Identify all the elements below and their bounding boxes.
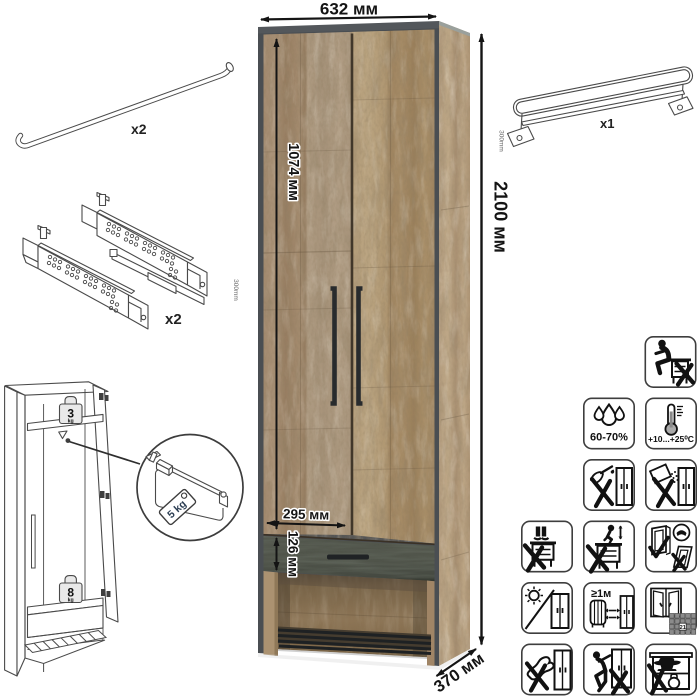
svg-text:kg: kg bbox=[68, 598, 74, 604]
svg-text:300mm: 300mm bbox=[498, 130, 505, 152]
svg-text:+10...+25⁰C: +10...+25⁰C bbox=[648, 434, 694, 444]
svg-text:632 мм: 632 мм bbox=[320, 0, 378, 19]
svg-text:x2: x2 bbox=[131, 121, 147, 137]
svg-text:21: 21 bbox=[680, 625, 686, 631]
svg-text:1074 мм: 1074 мм bbox=[285, 143, 301, 201]
svg-text:60-70%: 60-70% bbox=[590, 432, 628, 444]
svg-text:x2: x2 bbox=[165, 311, 182, 328]
svg-text:x1: x1 bbox=[600, 116, 614, 131]
svg-text:126 мм: 126 мм bbox=[286, 531, 301, 577]
svg-text:kg: kg bbox=[68, 419, 74, 425]
svg-text:≥1м: ≥1м bbox=[591, 588, 611, 600]
svg-text:295 мм: 295 мм bbox=[283, 506, 330, 522]
svg-text:2100 мм: 2100 мм bbox=[491, 181, 511, 253]
svg-text:300mm: 300mm bbox=[232, 279, 239, 301]
